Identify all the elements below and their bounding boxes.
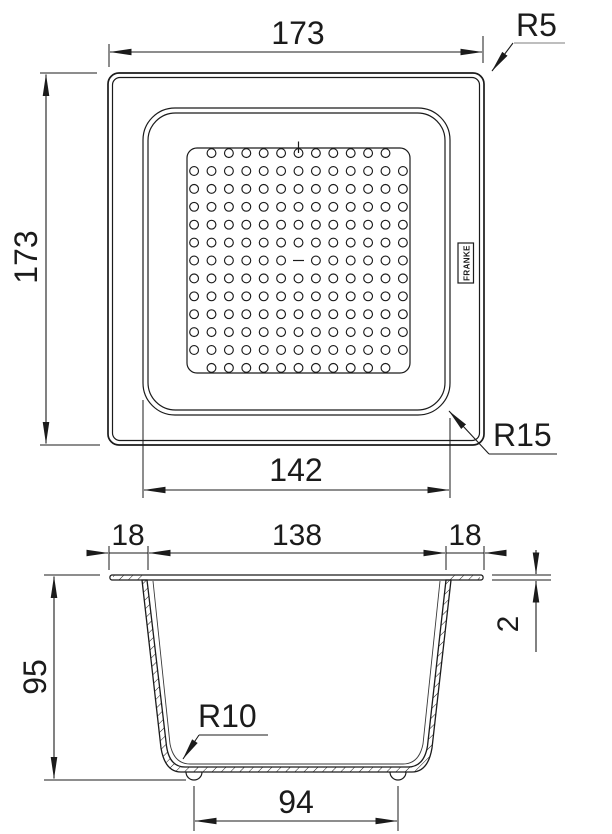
perforation-hole: [294, 202, 303, 211]
perforation-hole: [259, 167, 268, 176]
perforation-hole: [207, 274, 216, 283]
perforation-hole: [294, 292, 303, 301]
perforation-hole: [364, 167, 373, 176]
perforation-hole: [312, 167, 321, 176]
perforation-hole: [399, 167, 408, 176]
perforation-hole: [207, 238, 216, 247]
perforation-hole: [190, 274, 199, 283]
perforation-hole: [399, 185, 408, 194]
perforation-hole: [346, 292, 355, 301]
perforation-hole: [312, 310, 321, 319]
dim-overall-width: 173: [271, 15, 324, 51]
perforation-hole: [259, 238, 268, 247]
dim-base-corner-radius: R10: [198, 698, 257, 734]
top-view: FRANKE: [108, 73, 484, 445]
perforation-hole: [329, 310, 338, 319]
perforation-hole: [242, 149, 251, 158]
r15-leader: [449, 411, 489, 454]
perforation-hole: [364, 310, 373, 319]
perforation-hole: [312, 328, 321, 337]
perforation-hole: [242, 328, 251, 337]
perforation-hole: [364, 185, 373, 194]
perforation-hole: [225, 274, 234, 283]
perforation-hole: [207, 202, 216, 211]
perforation-hole: [381, 220, 390, 229]
perforation-hole: [364, 149, 373, 158]
r5-leader: [492, 43, 513, 71]
perforation-hole: [277, 202, 286, 211]
perforation-hole: [259, 220, 268, 229]
perforation-hole: [242, 185, 251, 194]
perforation-hole: [225, 364, 234, 373]
perforation-hole: [312, 346, 321, 355]
perforation-hole: [277, 185, 286, 194]
outer-body-inner-edge: [113, 78, 480, 441]
perforation-hole: [399, 346, 408, 355]
perforation-hole: [312, 256, 321, 265]
flange-hatch-right: [447, 576, 480, 580]
perforation-hole: [346, 220, 355, 229]
perforation-hole: [225, 202, 234, 211]
perforation-hole: [277, 256, 286, 265]
perforation-hole: [294, 274, 303, 283]
perforation-hole: [364, 220, 373, 229]
perforation-hole: [399, 310, 408, 319]
perforation-hole: [329, 274, 338, 283]
perforation-hole: [381, 185, 390, 194]
perforation-hole: [207, 220, 216, 229]
perforation-hole: [312, 238, 321, 247]
perforation-hole: [277, 292, 286, 301]
dim-base-width: 94: [278, 784, 314, 820]
logo-text: FRANKE: [463, 245, 472, 281]
perforation-hole: [277, 346, 286, 355]
perforation-hole: [242, 364, 251, 373]
perforation-hole: [381, 346, 390, 355]
perforation-hole: [190, 310, 199, 319]
perforation-hole: [312, 202, 321, 211]
perforation-hole: [381, 274, 390, 283]
perforation-hole: [399, 328, 408, 337]
perforation-hole: [312, 274, 321, 283]
perforation-hole: [346, 185, 355, 194]
perforation-hole: [399, 256, 408, 265]
perforation-hole: [364, 238, 373, 247]
perforation-hole: [242, 274, 251, 283]
dim-overall-height: 173: [8, 230, 44, 283]
perforation-hole: [294, 238, 303, 247]
perforation-hole: [277, 274, 286, 283]
perforation-hole: [277, 310, 286, 319]
perforation-hole: [207, 346, 216, 355]
perforation-hole: [207, 328, 216, 337]
technical-drawing: FRANKE 173 R5 173 142 R15: [0, 0, 612, 834]
perforation-hole: [294, 167, 303, 176]
perforation-hole: [190, 256, 199, 265]
perforation-hole: [329, 256, 338, 265]
perforation-hole: [277, 364, 286, 373]
perforation-hole: [346, 346, 355, 355]
perforation-hole: [207, 310, 216, 319]
perforation-hole: [312, 292, 321, 301]
dim-opening-width: 138: [272, 519, 322, 552]
perforation-hole: [346, 328, 355, 337]
perforation-hole: [364, 346, 373, 355]
perforation-hole: [277, 149, 286, 158]
perforation-hole: [312, 220, 321, 229]
perforation-hole: [329, 149, 338, 158]
perforation-hole: [329, 238, 338, 247]
perforation-hole: [190, 185, 199, 194]
perforation-hole: [242, 256, 251, 265]
perforation-hole: [190, 238, 199, 247]
perforation-hole: [259, 364, 268, 373]
perforation-hole: [294, 185, 303, 194]
perforation-hole: [242, 220, 251, 229]
perforation-hole: [346, 238, 355, 247]
foot-right: [390, 772, 406, 780]
perforation-hole: [207, 364, 216, 373]
perforation-hole: [294, 364, 303, 373]
perforation-hole: [381, 167, 390, 176]
perforation-hole: [259, 310, 268, 319]
perforation-hole: [225, 220, 234, 229]
dim-flange-right: 18: [448, 519, 481, 552]
perforation-hole: [225, 256, 234, 265]
perforation-hole: [381, 310, 390, 319]
perforation-hole: [364, 256, 373, 265]
perforation-hole: [381, 328, 390, 337]
drawing-canvas: FRANKE 173 R5 173 142 R15: [0, 0, 612, 834]
perforation-hole: [277, 220, 286, 229]
dim-rim-thickness: 2: [492, 616, 525, 633]
perforation-hole: [259, 346, 268, 355]
perforation-hole: [381, 238, 390, 247]
perforation-hole: [259, 149, 268, 158]
perforation-hole: [346, 202, 355, 211]
perforation-hole: [225, 167, 234, 176]
perforation-hole: [207, 292, 216, 301]
perforation-hole: [329, 185, 338, 194]
flange-hatch-left: [113, 576, 146, 580]
perforation-hole: [225, 310, 234, 319]
perforation-hole: [259, 292, 268, 301]
perforation-hole: [399, 292, 408, 301]
outer-body-edge: [108, 73, 484, 445]
perforation-hole: [207, 256, 216, 265]
perforation-hole: [364, 202, 373, 211]
perforation-hole: [399, 202, 408, 211]
perforation-hole: [207, 149, 216, 158]
basin-far-edge: [153, 581, 440, 764]
perforation-hole: [225, 328, 234, 337]
perforation-hole: [312, 185, 321, 194]
dim-rim-width: 142: [269, 452, 322, 488]
perforation-hole: [381, 202, 390, 211]
perforation-hole: [225, 346, 234, 355]
dim-depth: 95: [17, 659, 53, 695]
perforation-hole: [381, 256, 390, 265]
perforation-hole: [294, 310, 303, 319]
perforation-hole: [294, 328, 303, 337]
perforation-hole: [312, 149, 321, 158]
perforation-hole: [225, 292, 234, 301]
perforation-hole: [207, 167, 216, 176]
perforation-hole: [364, 364, 373, 373]
perforation-hole: [259, 202, 268, 211]
perforation-hole: [190, 328, 199, 337]
perforation-hole: [364, 328, 373, 337]
perforation-hole: [190, 292, 199, 301]
perforation-hole: [242, 202, 251, 211]
perforation-hole: [399, 238, 408, 247]
perforation-hole: [346, 310, 355, 319]
perforation-hole: [277, 328, 286, 337]
perforation-hole: [225, 185, 234, 194]
perforation-hole: [259, 274, 268, 283]
perforation-hole: [346, 364, 355, 373]
perforation-hole: [190, 346, 199, 355]
section-view: [110, 575, 483, 780]
perforation-hole: [277, 238, 286, 247]
perforation-hole: [329, 364, 338, 373]
perforation-hole: [329, 202, 338, 211]
top-view-dimensions: 173 R5 173 142 R15: [8, 7, 565, 498]
perforation-hole: [259, 185, 268, 194]
perforation-hole: [312, 364, 321, 373]
brand-logo: FRANKE: [458, 243, 474, 283]
perforation-hole: [259, 256, 268, 265]
perforation-hole: [364, 292, 373, 301]
perforation-hole: [294, 220, 303, 229]
perforation-hole: [225, 238, 234, 247]
perforation-hole: [294, 346, 303, 355]
perforation-hole: [329, 167, 338, 176]
perforation-hole: [346, 274, 355, 283]
perforation-hole: [381, 149, 390, 158]
perforation-hole: [381, 292, 390, 301]
perforation-hole: [346, 256, 355, 265]
perforation-hole: [381, 364, 390, 373]
perforation-hole: [190, 220, 199, 229]
perforation-hole: [346, 167, 355, 176]
perforation-hole: [399, 220, 408, 229]
section-view-dimensions: 18 138 18 2 95 R10 94: [17, 519, 551, 831]
perforation-hole: [277, 167, 286, 176]
dim-inner-corner-radius: R15: [493, 417, 552, 453]
r10-leader: [183, 735, 199, 759]
perforation-hole: [399, 274, 408, 283]
perforation-hole: [259, 328, 268, 337]
perforation-hole: [329, 346, 338, 355]
perforation-hole: [242, 238, 251, 247]
perforation-hole: [329, 220, 338, 229]
foot-left: [186, 772, 202, 780]
perforation-hole: [207, 185, 216, 194]
perforation-hole: [190, 202, 199, 211]
perforation-hole: [242, 167, 251, 176]
perforation-holes: [190, 149, 408, 373]
perforation-hole: [329, 328, 338, 337]
perforation-hole: [364, 274, 373, 283]
perforation-hole: [242, 292, 251, 301]
dim-flange-left: 18: [111, 519, 144, 552]
perforation-hole: [346, 149, 355, 158]
rim-flange-section: [110, 575, 483, 580]
perforation-hole: [242, 346, 251, 355]
perforation-hole: [225, 149, 234, 158]
perforation-hole: [329, 292, 338, 301]
perforation-hole: [242, 310, 251, 319]
basin-wall-section: [142, 580, 451, 772]
dim-outer-corner-radius: R5: [516, 7, 557, 43]
perforation-hole: [190, 167, 199, 176]
